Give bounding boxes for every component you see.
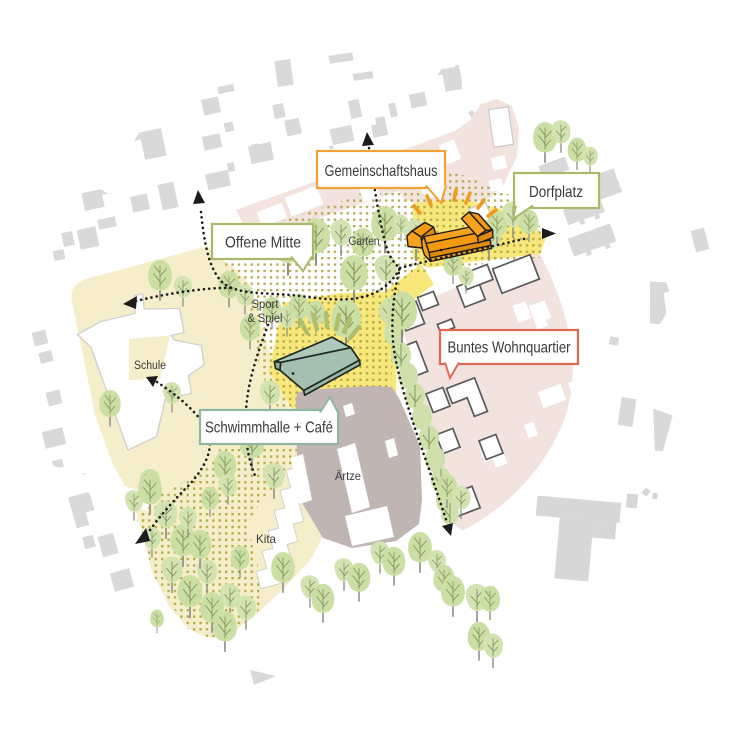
svg-text:& Spiel: & Spiel — [248, 313, 283, 325]
svg-text:Schwimmhalle + Café: Schwimmhalle + Café — [205, 420, 333, 437]
svg-text:Schule: Schule — [134, 360, 166, 372]
svg-text:Dorfplatz: Dorfplatz — [529, 184, 583, 201]
svg-text:Offene Mitte: Offene Mitte — [225, 235, 301, 252]
svg-text:Garten: Garten — [349, 236, 380, 248]
svg-text:Gemeinschaftshaus: Gemeinschaftshaus — [325, 163, 438, 180]
svg-text:Sport: Sport — [252, 299, 280, 311]
svg-text:Kita: Kita — [256, 532, 276, 546]
svg-text:Buntes Wohnquartier: Buntes Wohnquartier — [448, 340, 572, 357]
svg-text:Ärtze: Ärtze — [335, 469, 361, 483]
